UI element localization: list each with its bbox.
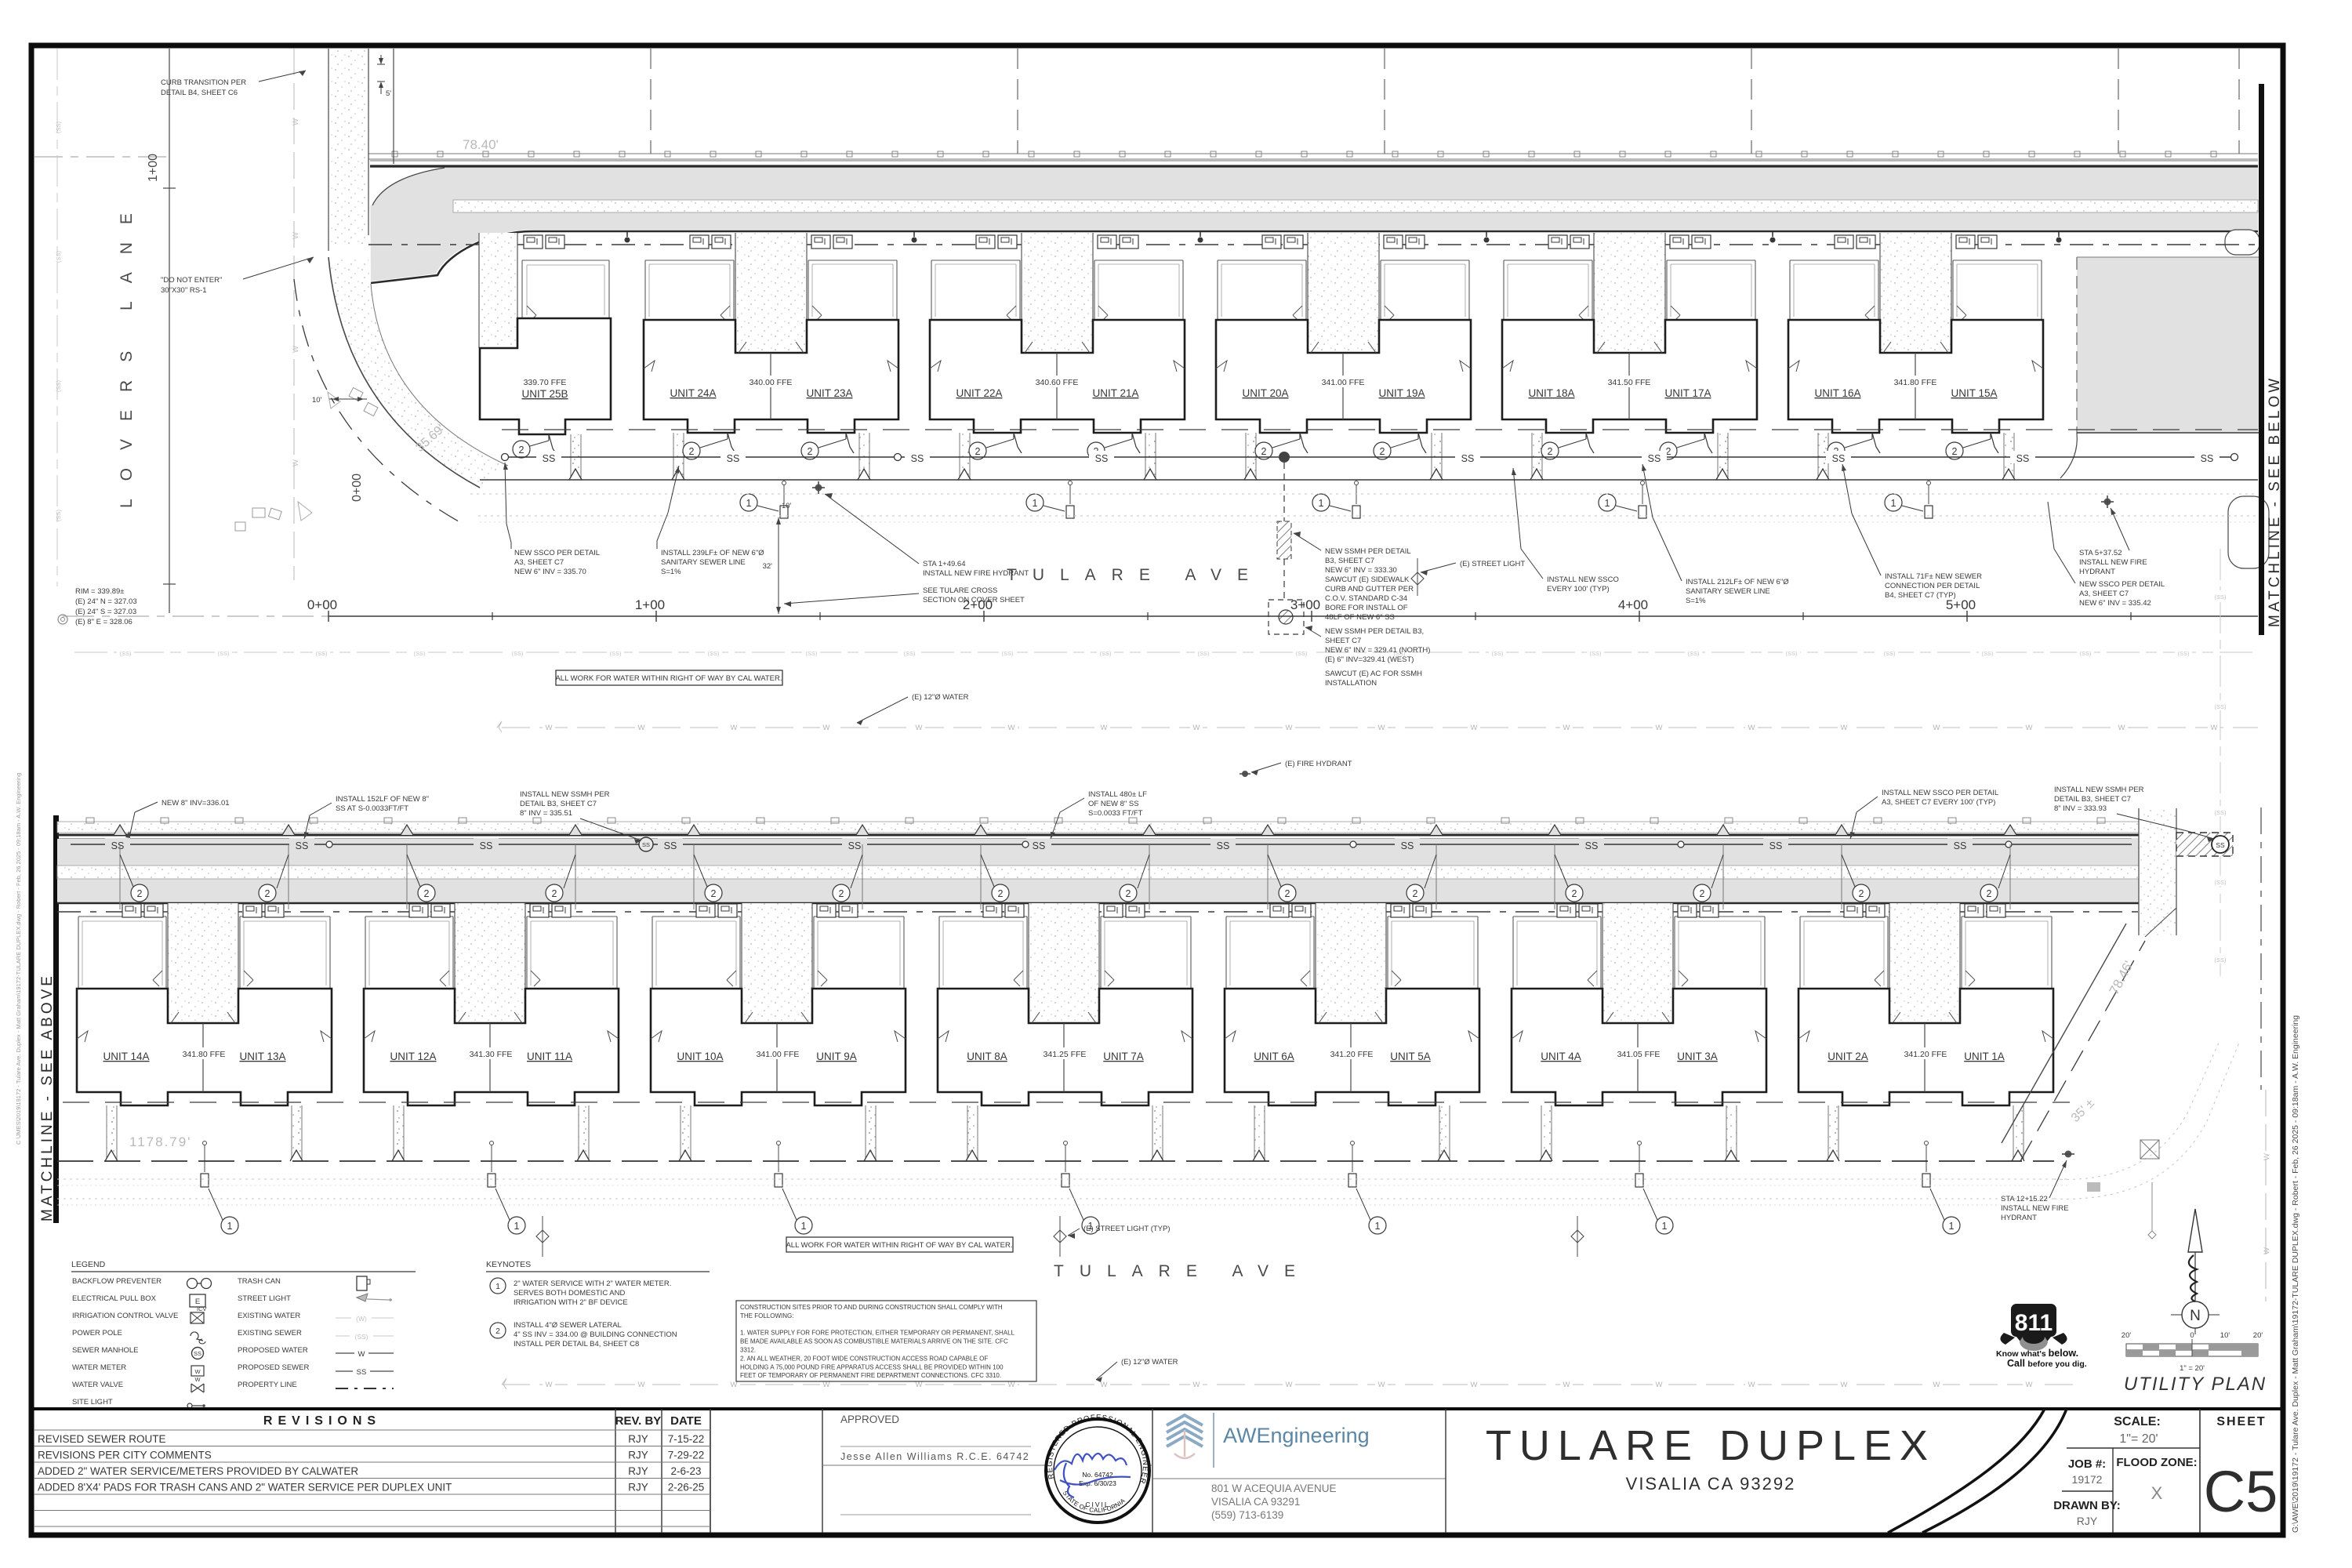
- svg-text:VISALIA CA 93292: VISALIA CA 93292: [1626, 1474, 1796, 1494]
- svg-text:C.O.V. STANDARD C-34: C.O.V. STANDARD C-34: [1325, 594, 1407, 603]
- svg-text:UNIT 3A: UNIT 3A: [1677, 1051, 1718, 1062]
- svg-text:2: 2: [519, 445, 524, 456]
- svg-text:UNIT 6A: UNIT 6A: [1254, 1051, 1294, 1062]
- svg-text:S=1%: S=1%: [661, 568, 681, 576]
- svg-text:2-6-23: 2-6-23: [670, 1465, 701, 1477]
- svg-text:W: W: [1378, 724, 1385, 732]
- svg-text:10': 10': [312, 396, 322, 405]
- svg-text:2: 2: [265, 888, 270, 899]
- svg-text:UNIT 12A: UNIT 12A: [390, 1051, 436, 1062]
- svg-text:UNIT 9A: UNIT 9A: [816, 1051, 857, 1062]
- svg-text:NEW SSCO PER DETAIL: NEW SSCO PER DETAIL: [514, 549, 600, 557]
- svg-text:1178.79': 1178.79': [129, 1134, 191, 1149]
- svg-text:SECTION ON COVER SHEET: SECTION ON COVER SHEET: [923, 596, 1025, 604]
- svg-text:W: W: [731, 1381, 738, 1389]
- svg-text:APPROVED: APPROVED: [840, 1414, 899, 1425]
- svg-text:INSTALL NEW SSMH PER: INSTALL NEW SSMH PER: [2054, 786, 2144, 794]
- svg-text:UNIT 20A: UNIT 20A: [1242, 387, 1288, 399]
- svg-text:(E) 12"Ø WATER: (E) 12"Ø WATER: [1121, 1358, 1178, 1367]
- svg-text:TULARE AVE: TULARE AVE: [1054, 1262, 1311, 1280]
- svg-text:A3, SHEET C7: A3, SHEET C7: [2079, 590, 2129, 598]
- svg-text:W: W: [823, 724, 830, 732]
- svg-text:FLOOD ZONE:: FLOOD ZONE:: [2116, 1456, 2197, 1469]
- svg-text:DETAIL B3, SHEET C7: DETAIL B3, SHEET C7: [2054, 795, 2131, 804]
- svg-text:(SS): (SS): [355, 1333, 368, 1341]
- svg-text:UNIT 18A: UNIT 18A: [1528, 387, 1574, 399]
- svg-text:(E) 24" S = 327.03: (E) 24" S = 327.03: [75, 608, 136, 616]
- svg-text:LEGEND: LEGEND: [71, 1260, 106, 1269]
- svg-text:1: 1: [495, 1282, 500, 1291]
- svg-text:(SS): (SS): [2215, 809, 2227, 816]
- svg-text:W: W: [1193, 724, 1200, 732]
- svg-text:2: 2: [711, 888, 717, 899]
- svg-text:341.20 FFE: 341.20 FFE: [1904, 1050, 1947, 1059]
- svg-text:UNIT 17A: UNIT 17A: [1664, 387, 1711, 399]
- svg-text:0: 0: [2190, 1331, 2194, 1340]
- svg-text:SAWCUT (E) SIDEWALK: SAWCUT (E) SIDEWALK: [1325, 575, 1410, 584]
- svg-text:2. AN ALL WEATHER, 20 FOOT WID: 2. AN ALL WEATHER, 20 FOOT WIDE CONSTRUC…: [740, 1355, 988, 1362]
- svg-text:SS: SS: [1832, 453, 1846, 464]
- svg-text:(SS): (SS): [120, 650, 132, 657]
- svg-text:B3, SHEET C7: B3, SHEET C7: [1325, 557, 1374, 565]
- svg-text:2: 2: [808, 446, 813, 457]
- svg-text:1: 1: [1662, 1221, 1668, 1232]
- svg-text:EXISTING SEWER: EXISTING SEWER: [238, 1329, 302, 1338]
- svg-text:FEET OF TEMPORARY OF PERMANENT: FEET OF TEMPORARY OF PERMANENT FIRE DEPA…: [740, 1372, 1001, 1379]
- svg-text:(SS): (SS): [2178, 650, 2190, 657]
- svg-text:SEE TULARE CROSS: SEE TULARE CROSS: [923, 586, 997, 595]
- svg-text:W: W: [1841, 724, 1848, 732]
- svg-text:(SS): (SS): [1198, 650, 1210, 657]
- svg-text:S=1%: S=1%: [1686, 597, 1706, 605]
- svg-text:SERVES BOTH DOMESTIC AND: SERVES BOTH DOMESTIC AND: [514, 1289, 625, 1298]
- svg-text:SANITARY SEWER LINE: SANITARY SEWER LINE: [661, 558, 746, 567]
- svg-text:RJY: RJY: [628, 1465, 648, 1477]
- svg-text:TRASH CAN: TRASH CAN: [238, 1277, 281, 1286]
- svg-text:(SS): (SS): [708, 650, 720, 657]
- svg-text:SS: SS: [664, 840, 677, 851]
- svg-text:CURB TRANSITION PER: CURB TRANSITION PER: [161, 78, 246, 87]
- svg-text:SCALE:: SCALE:: [2114, 1415, 2161, 1428]
- svg-text:(W): (W): [356, 1315, 367, 1323]
- svg-text:1" = 20': 1" = 20': [2180, 1364, 2205, 1373]
- svg-text:THE FOLLOWING:: THE FOLLOWING:: [740, 1312, 793, 1319]
- svg-text:1: 1: [227, 1221, 233, 1232]
- svg-text:(SS): (SS): [1100, 650, 1112, 657]
- svg-text:B4, SHEET C7 (TYP): B4, SHEET C7 (TYP): [1885, 591, 1956, 600]
- svg-text:ELECTRICAL PULL BOX: ELECTRICAL PULL BOX: [72, 1294, 157, 1303]
- svg-text:ADDED 2" WATER SERVICE/METERS: ADDED 2" WATER SERVICE/METERS PROVIDED B…: [38, 1465, 358, 1477]
- svg-text:UNIT 22A: UNIT 22A: [956, 387, 1002, 399]
- svg-text:SANITARY SEWER LINE: SANITARY SEWER LINE: [1686, 587, 1770, 596]
- svg-text:20': 20': [2122, 1331, 2132, 1340]
- svg-text:UTILITY PLAN: UTILITY PLAN: [2124, 1374, 2267, 1395]
- svg-text:W: W: [1841, 1381, 1848, 1389]
- svg-text:W: W: [2026, 724, 2033, 732]
- svg-text:SS: SS: [1461, 453, 1475, 464]
- svg-text:1: 1: [1891, 498, 1896, 509]
- svg-text:1: 1: [1033, 498, 1038, 509]
- svg-text:UNIT 4A: UNIT 4A: [1541, 1051, 1581, 1062]
- svg-text:10': 10': [782, 502, 792, 510]
- svg-text:W: W: [1933, 724, 1940, 732]
- svg-text:2: 2: [1987, 888, 1992, 899]
- svg-text:(SS): (SS): [2215, 593, 2227, 601]
- svg-text:UNIT 21A: UNIT 21A: [1092, 387, 1138, 399]
- svg-text:IRRIGATION WITH 2" BF DEVICE: IRRIGATION WITH 2" BF DEVICE: [514, 1298, 628, 1307]
- svg-text:(SS): (SS): [218, 650, 230, 657]
- svg-text:341.20 FFE: 341.20 FFE: [1330, 1050, 1374, 1059]
- svg-text:EVERY 100' (TYP): EVERY 100' (TYP): [1547, 585, 1610, 593]
- svg-text:Know what's below.: Know what's below.: [1996, 1348, 2078, 1359]
- svg-text:W: W: [1563, 724, 1570, 732]
- svg-text:(SS): (SS): [316, 650, 328, 657]
- svg-text:W: W: [1286, 724, 1293, 732]
- svg-text:VISALIA CA 93291: VISALIA CA 93291: [1211, 1496, 1300, 1508]
- svg-text:REVISED SEWER ROUTE: REVISED SEWER ROUTE: [38, 1433, 166, 1445]
- svg-text:UNIT 23A: UNIT 23A: [806, 387, 852, 399]
- svg-text:(SS): (SS): [1002, 650, 1014, 657]
- svg-text:BE MADE AVAILABLE AS SOON AS C: BE MADE AVAILABLE AS SOON AS COMBUSTIBLE…: [740, 1338, 1008, 1345]
- svg-text:2: 2: [998, 888, 1004, 899]
- svg-text:UNIT 8A: UNIT 8A: [967, 1051, 1007, 1062]
- svg-text:OF NEW 8" SS: OF NEW 8" SS: [1088, 800, 1139, 808]
- svg-text:W: W: [1193, 1381, 1200, 1389]
- svg-text:Jesse Allen Williams R.C.E.: Jesse Allen Williams R.C.E. 64742: [840, 1451, 1029, 1462]
- svg-text:2: 2: [1700, 888, 1705, 899]
- svg-text:2" WATER SERVICE WITH 2" WATER: 2" WATER SERVICE WITH 2" WATER METER.: [514, 1279, 671, 1288]
- svg-text:A3, SHEET C7 EVERY 100' (TYP): A3, SHEET C7 EVERY 100' (TYP): [1882, 798, 1995, 807]
- svg-text:W: W: [358, 1350, 365, 1359]
- svg-text:341.50 FFE: 341.50 FFE: [1608, 378, 1651, 387]
- svg-text:0+00: 0+00: [307, 597, 337, 612]
- svg-text:REV. BY: REV. BY: [615, 1414, 662, 1428]
- svg-text:INSTALL 212LF± OF NEW 6"Ø: INSTALL 212LF± OF NEW 6"Ø: [1686, 578, 1789, 586]
- svg-text:(SS): (SS): [1786, 650, 1798, 657]
- svg-text:STA 12+15.22: STA 12+15.22: [2001, 1195, 2048, 1203]
- svg-text:SS: SS: [480, 840, 493, 851]
- svg-text:W: W: [2263, 1247, 2271, 1254]
- svg-text:SS: SS: [1954, 840, 1967, 851]
- svg-text:W: W: [1933, 1381, 1940, 1389]
- svg-text:SS: SS: [543, 453, 556, 464]
- svg-text:ALL WORK FOR WATER WITHIN RIGH: ALL WORK FOR WATER WITHIN RIGHT OF WAY B…: [786, 1241, 1012, 1250]
- svg-text:UNIT 11A: UNIT 11A: [527, 1051, 572, 1062]
- svg-text:STA 5+37.52: STA 5+37.52: [2079, 549, 2122, 557]
- svg-text:2: 2: [424, 888, 430, 899]
- svg-text:2: 2: [1548, 446, 1553, 457]
- svg-text:W: W: [292, 118, 300, 125]
- svg-text:2: 2: [1952, 446, 1958, 457]
- svg-text:(SS): (SS): [512, 650, 524, 657]
- svg-text:NEW 8" INV=336.01: NEW 8" INV=336.01: [162, 799, 230, 808]
- svg-text:STREET LIGHT: STREET LIGHT: [238, 1294, 291, 1303]
- svg-text:(SS): (SS): [1590, 650, 1602, 657]
- svg-text:341.25 FFE: 341.25 FFE: [1044, 1050, 1087, 1059]
- svg-text:(SS): (SS): [1688, 650, 1700, 657]
- svg-text:W: W: [1656, 1381, 1663, 1389]
- svg-text:SS: SS: [296, 840, 309, 851]
- svg-text:(SS): (SS): [1884, 650, 1896, 657]
- svg-text:BACKFLOW PREVENTER: BACKFLOW PREVENTER: [72, 1277, 162, 1286]
- svg-text:(E) 8" E = 328.06: (E) 8" E = 328.06: [75, 618, 132, 626]
- svg-text:1: 1: [1375, 1221, 1381, 1232]
- svg-text:W: W: [1563, 1381, 1570, 1389]
- svg-text:NEW 6" INV = 335.70: NEW 6" INV = 335.70: [514, 568, 586, 576]
- svg-text:2: 2: [1859, 888, 1864, 899]
- svg-text:SS: SS: [1095, 453, 1109, 464]
- svg-text:7-29-22: 7-29-22: [668, 1450, 705, 1461]
- svg-text:(SS): (SS): [2215, 703, 2227, 710]
- svg-text:W: W: [1471, 724, 1478, 732]
- svg-text:SS: SS: [2216, 841, 2225, 849]
- svg-text:PROPERTY LINE: PROPERTY LINE: [238, 1381, 297, 1389]
- svg-text:LOVERS LANE: LOVERS LANE: [118, 195, 136, 508]
- svg-text:N: N: [2190, 1308, 2201, 1324]
- svg-text:W: W: [638, 1381, 645, 1389]
- svg-text:2: 2: [1261, 446, 1267, 457]
- svg-text:RJY: RJY: [628, 1450, 648, 1461]
- svg-text:HYDRANT: HYDRANT: [2079, 568, 2115, 576]
- svg-text:SAWCUT (E) AC FOR SSMH: SAWCUT (E) AC FOR SSMH: [1325, 670, 1422, 678]
- svg-text:JOB #:: JOB #:: [2068, 1457, 2106, 1471]
- svg-text:UNIT 15A: UNIT 15A: [1951, 387, 1997, 399]
- svg-text:C \JMES\2019\19172 - Tulare A: C \JMES\2019\19172 - Tulare Ave. Duplex …: [15, 773, 22, 1145]
- svg-text:30"X30" RS-1: 30"X30" RS-1: [161, 286, 207, 295]
- svg-text:RIM = 339.89±: RIM = 339.89±: [75, 587, 125, 596]
- svg-text:SS: SS: [1769, 840, 1783, 851]
- svg-text:TULARE AVE: TULARE AVE: [1007, 566, 1264, 584]
- svg-text:W: W: [916, 724, 923, 732]
- svg-text:UNIT 19A: UNIT 19A: [1378, 387, 1425, 399]
- svg-text:10': 10': [2220, 1331, 2230, 1340]
- svg-text:INSTALL NEW FIRE: INSTALL NEW FIRE: [2079, 558, 2147, 567]
- svg-text:SITE LIGHT: SITE LIGHT: [72, 1398, 113, 1406]
- svg-text:3+00: 3+00: [1290, 597, 1320, 612]
- svg-text:ICV: ICV: [197, 1305, 207, 1312]
- svg-text:NEW 6" INV = 329.41 (NORTH): NEW 6" INV = 329.41 (NORTH): [1325, 646, 1430, 655]
- svg-text:INSTALL 71F± NEW SEWER: INSTALL 71F± NEW SEWER: [1885, 572, 1982, 581]
- svg-text:1: 1: [801, 1221, 807, 1232]
- svg-text:1+00: 1+00: [635, 597, 665, 612]
- svg-text:W: W: [1471, 1381, 1478, 1389]
- svg-text:W: W: [1656, 724, 1663, 732]
- svg-text:8" INV = 335.51: 8" INV = 335.51: [520, 809, 572, 818]
- svg-text:(E) 24" N = 327.03: (E) 24" N = 327.03: [75, 597, 137, 606]
- svg-text:SHEET C7: SHEET C7: [1325, 637, 1361, 645]
- svg-text:5': 5': [386, 89, 391, 98]
- svg-text:1: 1: [514, 1221, 520, 1232]
- svg-text:INSTALL NEW FIRE HYDRANT: INSTALL NEW FIRE HYDRANT: [923, 569, 1029, 578]
- svg-text:REVISIONS: REVISIONS: [263, 1414, 381, 1428]
- svg-text:NEW SSCO PER DETAIL: NEW SSCO PER DETAIL: [2079, 580, 2165, 589]
- svg-text:W: W: [2118, 724, 2125, 732]
- svg-text:W: W: [546, 1381, 553, 1389]
- svg-text:(SS): (SS): [55, 121, 62, 133]
- svg-text:W: W: [292, 346, 300, 353]
- svg-text:BORE FOR INSTALL OF: BORE FOR INSTALL OF: [1325, 604, 1408, 612]
- svg-text:SS: SS: [1217, 840, 1230, 851]
- svg-text:1. WATER SUPPLY FOR FORE PROTE: 1. WATER SUPPLY FOR FORE PROTECTION, EIT…: [740, 1330, 1015, 1337]
- svg-text:811: 811: [2015, 1310, 2053, 1336]
- svg-text:UNIT 1A: UNIT 1A: [1964, 1051, 2005, 1062]
- svg-text:0+00: 0+00: [350, 474, 364, 502]
- svg-text:W: W: [1008, 724, 1015, 732]
- svg-text:TULARE DUPLEX: TULARE DUPLEX: [1486, 1422, 1936, 1469]
- svg-text:NEW SSMH PER DETAIL B3,: NEW SSMH PER DETAIL B3,: [1325, 627, 1424, 636]
- svg-text:341.30 FFE: 341.30 FFE: [470, 1050, 513, 1059]
- svg-text:1: 1: [1605, 498, 1610, 509]
- svg-text:(SS): (SS): [2215, 879, 2227, 886]
- svg-text:G:\AWE\2019\19172 - Tulare Ave: G:\AWE\2019\19172 - Tulare Ave. Duplex -…: [2291, 1015, 2300, 1533]
- svg-text:UNIT 7A: UNIT 7A: [1103, 1051, 1144, 1062]
- svg-text:SS: SS: [1033, 840, 1046, 851]
- svg-text:A3, SHEET C7: A3, SHEET C7: [514, 558, 564, 567]
- svg-text:2: 2: [552, 888, 557, 899]
- svg-text:INSTALL 480± LF: INSTALL 480± LF: [1088, 790, 1147, 799]
- svg-text:341.00 FFE: 341.00 FFE: [757, 1050, 800, 1059]
- svg-text:S=0.0033 FT/FT: S=0.0033 FT/FT: [1088, 809, 1143, 818]
- svg-text:SS: SS: [1585, 840, 1599, 851]
- svg-text:(SS): (SS): [414, 650, 426, 657]
- svg-text:UNIT 2A: UNIT 2A: [1828, 1051, 1868, 1062]
- svg-text:Call before you dig.: Call before you dig.: [2007, 1358, 2087, 1369]
- svg-text:W: W: [1748, 724, 1755, 732]
- svg-text:PROPOSED WATER: PROPOSED WATER: [238, 1346, 308, 1355]
- svg-text:UNIT 13A: UNIT 13A: [239, 1051, 285, 1062]
- svg-text:19172: 19172: [2072, 1473, 2103, 1486]
- svg-text:341.80 FFE: 341.80 FFE: [1894, 378, 1937, 387]
- svg-text:(SS): (SS): [2215, 956, 2227, 964]
- svg-text:2: 2: [1285, 888, 1290, 899]
- svg-text:DATE: DATE: [670, 1414, 702, 1428]
- svg-text:RJY: RJY: [628, 1482, 648, 1494]
- svg-text:32': 32': [763, 562, 773, 571]
- svg-text:1: 1: [746, 498, 752, 509]
- svg-text:INSTALL NEW SSMH PER: INSTALL NEW SSMH PER: [520, 790, 610, 799]
- svg-text:341.00 FFE: 341.00 FFE: [1322, 378, 1365, 387]
- svg-text:2: 2: [495, 1327, 500, 1336]
- svg-text:2: 2: [839, 888, 844, 899]
- svg-text:(E) 6" INV=329.41 (WEST): (E) 6" INV=329.41 (WEST): [1325, 655, 1414, 664]
- svg-text:341.05 FFE: 341.05 FFE: [1617, 1050, 1661, 1059]
- svg-text:POWER POLE: POWER POLE: [72, 1329, 122, 1338]
- svg-text:X: X: [2151, 1483, 2163, 1503]
- svg-text:CONNECTION PER DETAIL: CONNECTION PER DETAIL: [1885, 582, 1980, 590]
- svg-text:ADDED 8'X4' PADS FOR TRASH CAN: ADDED 8'X4' PADS FOR TRASH CANS AND 2" W…: [38, 1482, 452, 1494]
- svg-text:NEW 6" INV = 333.30: NEW 6" INV = 333.30: [1325, 566, 1397, 575]
- svg-text:(SS): (SS): [55, 509, 62, 521]
- svg-text:UNIT 5A: UNIT 5A: [1390, 1051, 1431, 1062]
- svg-text:2: 2: [1572, 888, 1577, 899]
- svg-text:UNIT 24A: UNIT 24A: [670, 387, 716, 399]
- svg-text:INSTALL PER DETAIL B4, SHEET C: INSTALL PER DETAIL B4, SHEET C8: [514, 1340, 639, 1348]
- svg-text:W: W: [1008, 1381, 1015, 1389]
- svg-text:EXISTING WATER: EXISTING WATER: [238, 1312, 300, 1320]
- svg-text:W: W: [194, 1376, 201, 1383]
- svg-text:801 W ACEQUIA AVENUE: 801 W ACEQUIA AVENUE: [1211, 1483, 1337, 1494]
- svg-text:2: 2: [137, 888, 143, 899]
- svg-text:(SS): (SS): [1296, 650, 1308, 657]
- svg-text:KEYNOTES: KEYNOTES: [486, 1260, 531, 1269]
- svg-text:INSTALL NEW SSCO PER DETAIL: INSTALL NEW SSCO PER DETAIL: [1882, 789, 1998, 797]
- svg-text:DETAIL B3, SHEET C7: DETAIL B3, SHEET C7: [520, 800, 597, 808]
- svg-text:(SS): (SS): [55, 379, 62, 392]
- svg-text:SS: SS: [194, 1350, 201, 1357]
- svg-text:SS: SS: [911, 453, 924, 464]
- svg-text:W: W: [1748, 1381, 1755, 1389]
- svg-text:CURB AND GUTTER PER: CURB AND GUTTER PER: [1325, 585, 1414, 593]
- svg-text:MATCHLINE - SEE ABOVE: MATCHLINE - SEE ABOVE: [39, 973, 56, 1221]
- svg-text:7-15-22: 7-15-22: [668, 1433, 705, 1445]
- svg-text:(SS): (SS): [1982, 650, 1994, 657]
- svg-text:SS: SS: [357, 1368, 367, 1377]
- svg-text:(559) 713-6139: (559) 713-6139: [1211, 1509, 1283, 1521]
- svg-text:W: W: [2263, 1153, 2271, 1160]
- svg-text:4" SS INV = 334.00 @ BUILDING: 4" SS INV = 334.00 @ BUILDING CONNECTION: [514, 1330, 677, 1339]
- svg-text:(SS): (SS): [55, 250, 62, 263]
- svg-text:2: 2: [689, 446, 695, 457]
- svg-text:340.00 FFE: 340.00 FFE: [750, 378, 793, 387]
- svg-text:SHEET: SHEET: [2216, 1415, 2266, 1428]
- svg-text:341.80 FFE: 341.80 FFE: [183, 1050, 226, 1059]
- svg-text:INSTALL NEW SSCO: INSTALL NEW SSCO: [1547, 575, 1619, 584]
- svg-text:(E) 12"Ø WATER: (E) 12"Ø WATER: [912, 693, 969, 702]
- svg-text:HOLDING A 75,000 POUND FIRE AP: HOLDING A 75,000 POUND FIRE APPARATUS AC…: [740, 1363, 1004, 1370]
- svg-text:SS: SS: [2201, 453, 2214, 464]
- svg-text:SS: SS: [727, 453, 740, 464]
- svg-text:INSTALLATION: INSTALLATION: [1325, 679, 1377, 688]
- svg-text:SS: SS: [1648, 453, 1661, 464]
- svg-text:ALL WORK FOR WATER WITHIN RIGH: ALL WORK FOR WATER WITHIN RIGHT OF WAY B…: [555, 674, 782, 683]
- svg-text:SS: SS: [1401, 840, 1414, 851]
- svg-text:(E) STREET LIGHT (TYP): (E) STREET LIGHT (TYP): [1083, 1225, 1171, 1233]
- svg-text:HYDRANT: HYDRANT: [2001, 1214, 2037, 1222]
- svg-text:2: 2: [1126, 888, 1131, 899]
- svg-text:W: W: [546, 724, 553, 732]
- svg-text:W: W: [1101, 1381, 1108, 1389]
- svg-text:W: W: [1101, 724, 1108, 732]
- svg-text:(SS): (SS): [610, 650, 622, 657]
- svg-text:NEW 6" INV = 335.42: NEW 6" INV = 335.42: [2079, 599, 2151, 608]
- svg-text:W: W: [2026, 1381, 2033, 1389]
- svg-text:SS AT S-0.0033FT/FT: SS AT S-0.0033FT/FT: [336, 804, 408, 813]
- svg-text:(SS): (SS): [1492, 650, 1504, 657]
- svg-text:RJY: RJY: [628, 1433, 648, 1445]
- svg-text:2: 2: [1413, 888, 1418, 899]
- svg-text:CONSTRUCTION SITES PRIOR TO AN: CONSTRUCTION SITES PRIOR TO AND DURING C…: [740, 1304, 1003, 1311]
- svg-text:INSTALL NEW FIRE: INSTALL NEW FIRE: [2001, 1204, 2069, 1213]
- svg-text:AWEngineering: AWEngineering: [1223, 1424, 1370, 1447]
- svg-text:1: 1: [1319, 498, 1324, 509]
- svg-text:(SS): (SS): [806, 650, 818, 657]
- svg-text:W: W: [916, 1381, 923, 1389]
- svg-text:C5: C5: [2204, 1459, 2278, 1524]
- svg-text:SS: SS: [111, 840, 125, 851]
- svg-text:REVISIONS PER CITY COMMENTS: REVISIONS PER CITY COMMENTS: [38, 1450, 212, 1461]
- svg-text:W: W: [731, 724, 738, 732]
- svg-text:48LF OF NEW 6" SS: 48LF OF NEW 6" SS: [1325, 613, 1395, 622]
- svg-text:20': 20': [2253, 1331, 2263, 1340]
- svg-text:INSTALL 152LF OF NEW 8": INSTALL 152LF OF NEW 8": [336, 795, 429, 804]
- svg-text:UNIT 14A: UNIT 14A: [103, 1051, 149, 1062]
- svg-text:INSTALL 4"Ø SEWER LATERAL: INSTALL 4"Ø SEWER LATERAL: [514, 1321, 622, 1330]
- svg-text:W: W: [292, 459, 300, 466]
- svg-text:4+00: 4+00: [1618, 597, 1648, 612]
- svg-text:DETAIL B4, SHEET C6: DETAIL B4, SHEET C6: [161, 89, 238, 97]
- svg-text:W: W: [194, 1368, 201, 1375]
- svg-text:W: W: [823, 1381, 830, 1389]
